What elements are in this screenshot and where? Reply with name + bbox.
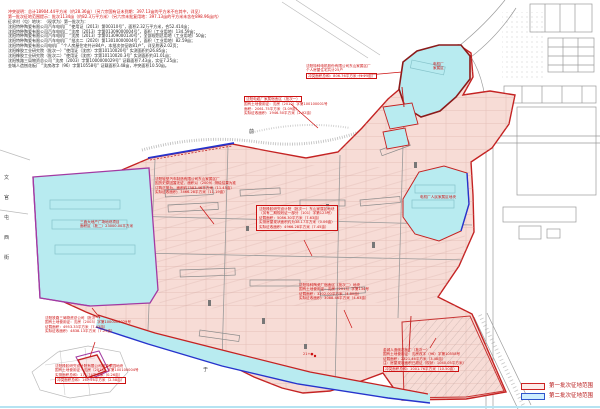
- legend: 第一批次征地范围 第二批次征地范围: [521, 383, 593, 400]
- annotation-plaza-block: 三鑫大地产广场地块项目面积区（批二）23000.00平方米: [80, 220, 133, 229]
- legend-item-batch2: 第二批次征地范围: [521, 393, 593, 400]
- point-21-label: 21+●: [303, 352, 313, 356]
- batch2-west-region: [33, 168, 158, 306]
- annotation-particle-board: 金城人造刨花板厂（批次一）国有土地使用证：沈房改字（96）字第10558号证载面…: [383, 348, 466, 372]
- annotation-line: 实际征收面积：1946.50平方米（2.92亩）: [244, 111, 328, 115]
- annotation-line: 实际征收面积：3088.46平方米（4.63亩）: [299, 296, 369, 300]
- annotation-line: 电机厂人民家属区地块: [420, 195, 456, 199]
- note-line: 金城人造刨花板厂 “沈房改字（96）字第10558号” 证载面积3.48亩，冲突…: [8, 64, 238, 69]
- annotation-railway-bureau: 沈阳铁路三局物资总公司（批次一）国有土地使用证：沈房（2003）字第100000…: [45, 316, 131, 334]
- batch2-small-parcel-2: [383, 128, 409, 149]
- annotation-light-vehicle: 沈阳轻型汽车制造有限公司东山家属区厂因历史原因暂无证，面积以（2009）测绘结果…: [155, 177, 236, 195]
- legend-item-batch1: 第一批次征地范围: [521, 383, 593, 390]
- street-char: 官: [4, 194, 9, 201]
- annotation-committee-block: 电机厂人民家属区地块: [420, 195, 456, 199]
- annotation-line: 面积区（批二）23000.00平方米: [80, 224, 133, 228]
- annotation-line: 冲突面积总和：806.76平方米（1.21亩）: [306, 73, 377, 79]
- annotation-east-housing: 沈阳特种电机股份有限公司东山家属区厂个人房屋住宅共计25户冲突面积总和：806.…: [306, 64, 377, 79]
- street-name-vertical: 文官屯西街: [4, 174, 9, 261]
- street-char: 街: [4, 254, 9, 261]
- legend-swatch-batch2: [521, 393, 545, 400]
- street-char: 文: [4, 174, 9, 181]
- annotation-line: 实际征收面积：7466.28平方米（11.19亩）: [155, 190, 236, 194]
- annotation-line: 实际征收面积：4838.13平方米（7.25亩）: [45, 329, 131, 333]
- map-frame-bottom-line: [0, 406, 600, 408]
- annotation-line: 冲突面积总和：1001.76平方米（10.50亩）: [383, 366, 459, 372]
- annotation-ceramics-dorm: 沈阳特种陶瓷厂宿舍区（批次二）地块国有土地使用证：沈房（2013）字第134号证…: [299, 283, 369, 301]
- annotation-cable-plant: 沈阳电缆厂家属宿舍区（批次一）国有土地使用证：沈房（2010）字第1001000…: [244, 96, 328, 116]
- notes-block: 冲突说明：总计18904.44平方米（约28.36亩）（另六宗国有证未到期：39…: [8, 10, 238, 69]
- land-acquisition-map-page: { "legend": { "items": [ { "label": "第一批…: [0, 0, 600, 409]
- annotation-rubber-institute: 沈阳橡胶研究设计院（批次一）东山家属区地块（另有二期规划证一部分（101）字第1…: [256, 205, 338, 231]
- street-char: 屯: [4, 214, 9, 221]
- annotation-line: 实际征收面积：4966.28平方米（7.45亩）: [259, 225, 335, 229]
- legend-label-batch1: 第一批次征地范围: [549, 384, 593, 390]
- annotation-north-block: 电机厂家属区: [433, 62, 444, 71]
- annotation-rubber-design: 沈阳橡胶研究设计院有限公司檀香家园地块国有土地使用证：沈房（2013）字第100…: [55, 364, 139, 384]
- legend-label-batch2: 第二批次征地范围: [549, 394, 593, 400]
- map-char-top: 前: [249, 128, 254, 135]
- legend-swatch-batch1: [521, 383, 545, 390]
- map-char-bottom: 于: [203, 366, 208, 373]
- annotation-line: 家属区: [433, 66, 444, 70]
- annotation-line: 冲突面积总和：167.56平方米（2.58亩）: [55, 377, 126, 383]
- street-char: 西: [4, 234, 9, 241]
